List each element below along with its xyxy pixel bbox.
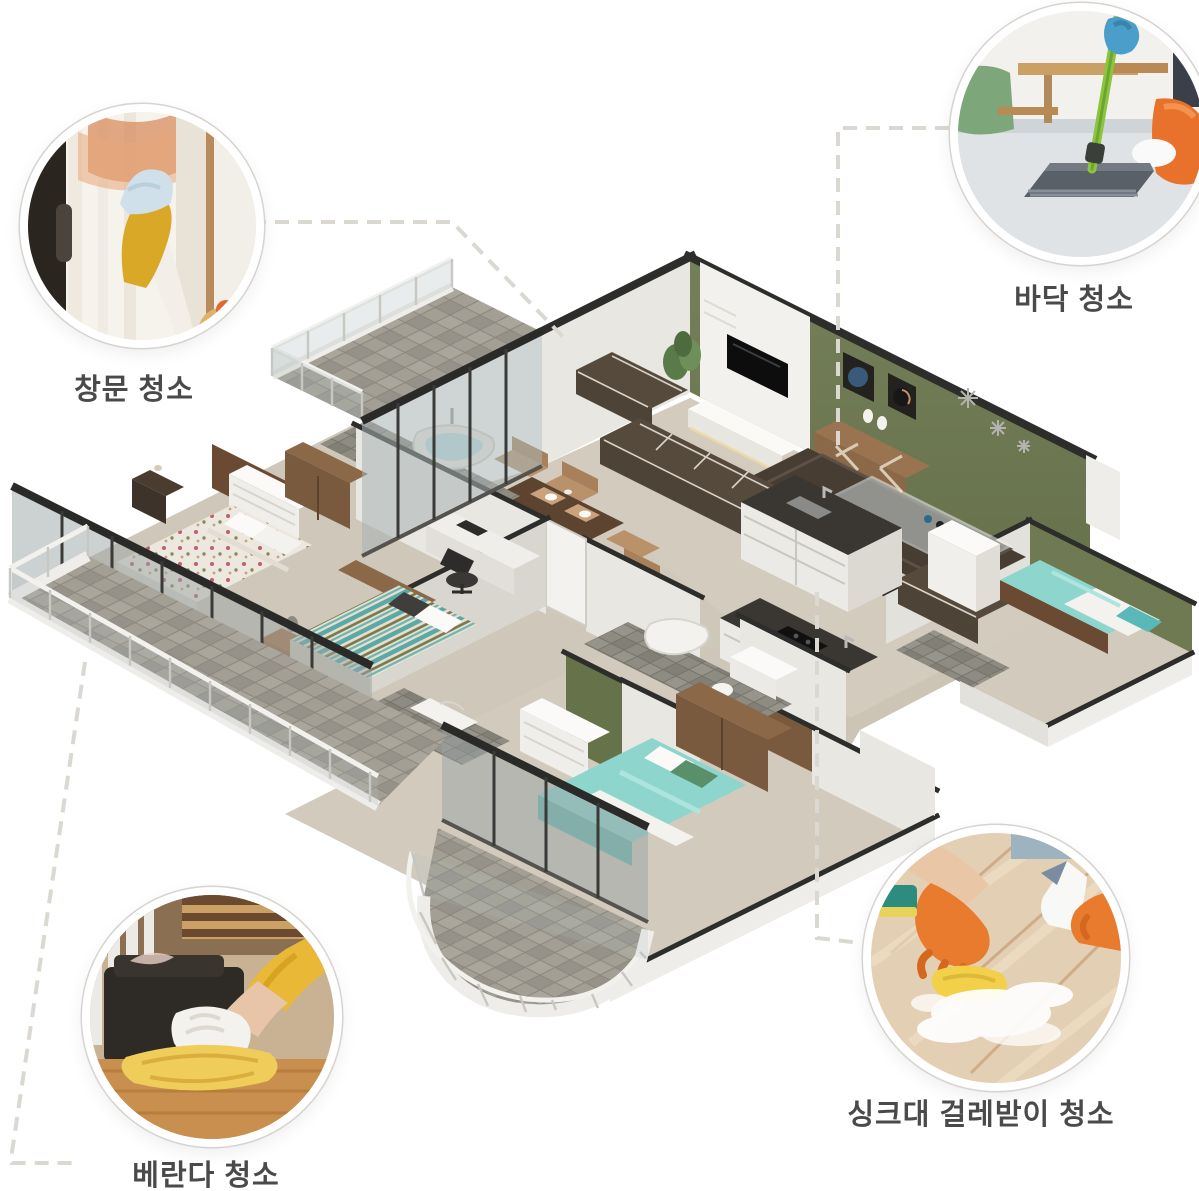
- callout-sink-baseboard-cleaning: [863, 825, 1129, 1091]
- connector-veranda-cleaning: [12, 662, 85, 1163]
- window-cleaning-photo: [28, 112, 256, 340]
- label-floor-cleaning: 바닥 청소: [1014, 276, 1134, 318]
- label-window-cleaning: 창문 청소: [74, 366, 194, 408]
- sink-baseboard-scrubbing-photo: [871, 833, 1121, 1083]
- callout-floor-cleaning: [950, 3, 1199, 265]
- label-sink-baseboard-cleaning: 싱크대 걸레받이 청소: [847, 1091, 1114, 1133]
- door-panel: [546, 519, 586, 626]
- callout-window-cleaning: [20, 104, 264, 348]
- label-veranda-cleaning: 베란다 청소: [132, 1152, 279, 1191]
- cleaning-service-infographic: 창문 청소 바닥 청소: [0, 0, 1199, 1191]
- floor-mopping-photo: [958, 11, 1199, 257]
- veranda-wiping-photo: [90, 895, 334, 1139]
- callout-veranda-cleaning: [82, 887, 342, 1147]
